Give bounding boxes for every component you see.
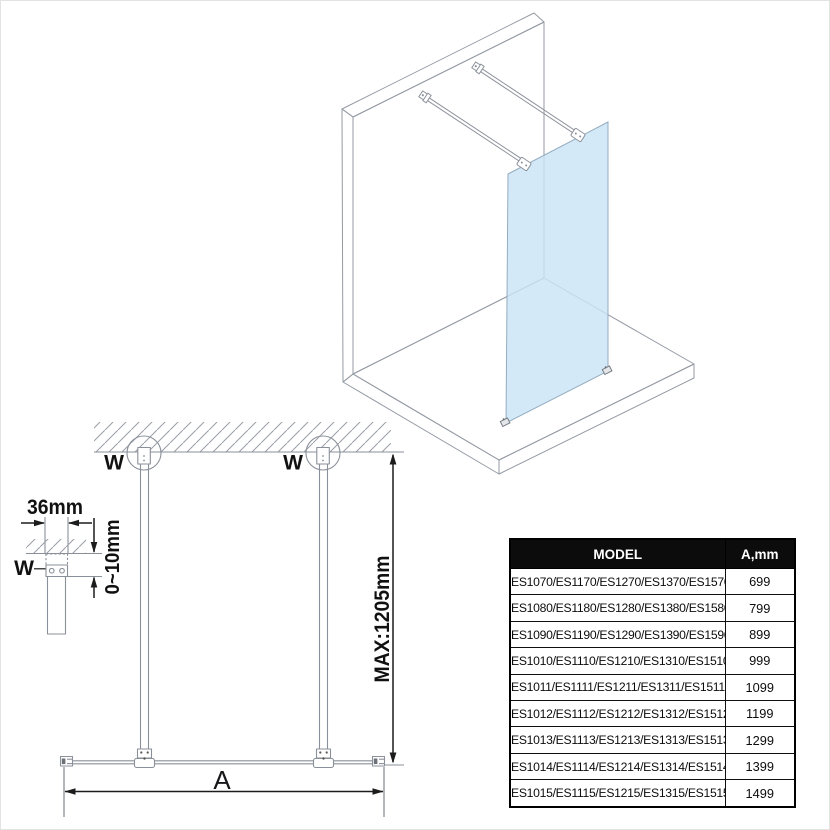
wall-marker-detail: W [14, 557, 34, 580]
table-row: ES1014/ES1114/ES1214/ES1314/ES1514 1399 [510, 753, 795, 779]
column-header-a-mm: A,mm [725, 539, 795, 569]
plan-view: MAX:1205mm A W W 36mm [14, 422, 404, 817]
support-rod-left [141, 464, 149, 749]
model-cell: ES1010/ES1110/ES1210/ES1310/ES1510 [510, 648, 725, 674]
support-rod-right [320, 464, 328, 749]
table-row: ES1070/ES1170/ES1270/ES1370/ES1570 699 [510, 569, 795, 595]
model-table: MODEL A,mm ES1070/ES1170/ES1270/ES1370/E… [509, 538, 796, 808]
table-row: ES1011/ES1111/ES1211/ES1311/ES1511 1099 [510, 674, 795, 700]
iso-support-bar-left [418, 90, 531, 171]
model-cell: ES1015/ES1115/ES1215/ES1315/ES1515 [510, 780, 725, 807]
max-length-label: MAX:1205mm [370, 556, 394, 683]
a-mm-cell: 1199 [725, 701, 795, 727]
model-cell: ES1080/ES1180/ES1280/ES1380/ES1580 [510, 595, 725, 621]
glass-width-label: A [213, 765, 231, 795]
table-row: ES1080/ES1180/ES1280/ES1380/ES1580 799 [510, 595, 795, 621]
table-row: ES1012/ES1112/ES1212/ES1312/ES1512 1199 [510, 701, 795, 727]
model-cell: ES1090/ES1190/ES1290/ES1390/ES1590 [510, 621, 725, 647]
a-mm-cell: 1499 [725, 780, 795, 807]
glass-clamp-left [135, 749, 155, 768]
model-cell: ES1014/ES1114/ES1214/ES1314/ES1514 [510, 753, 725, 779]
a-mm-cell: 999 [725, 648, 795, 674]
column-header-model: MODEL [510, 539, 725, 569]
a-mm-cell: 899 [725, 621, 795, 647]
dimension-glass-width: A [64, 765, 384, 817]
bracket-detail: 36mm 0~10mm W [14, 496, 124, 634]
glass-end-cap-right [373, 757, 385, 767]
model-cell: ES1070/ES1170/ES1270/ES1370/ES1570 [510, 569, 725, 595]
model-cell: ES1011/ES1111/ES1211/ES1311/ES1511 [510, 674, 725, 700]
glass-panel-plan [64, 761, 384, 764]
detail-wall-hatch [26, 539, 86, 554]
table-row: ES1013/ES1113/ES1213/ES1313/ES1513 1299 [510, 727, 795, 753]
model-cell: ES1012/ES1112/ES1212/ES1312/ES1512 [510, 701, 725, 727]
a-mm-cell: 1099 [725, 674, 795, 700]
model-cell: ES1013/ES1113/ES1213/ES1313/ES1513 [510, 727, 725, 753]
wall-marker-right: W [283, 452, 303, 475]
dimension-max-length: MAX:1205mm [370, 454, 404, 766]
glass-clamp-right [314, 749, 334, 768]
adjustment-label: 0~10mm [102, 520, 124, 595]
table-row: ES1015/ES1115/ES1215/ES1315/ES1515 1499 [510, 780, 795, 807]
shower-screen-spec-page: MAX:1205mm A W W 36mm [0, 0, 830, 830]
a-mm-cell: 699 [725, 569, 795, 595]
table-header-row: MODEL A,mm [510, 539, 795, 569]
wall-marker-left: W [104, 452, 124, 475]
glass-end-cap-left [61, 757, 73, 767]
isometric-view [342, 13, 694, 474]
a-mm-cell: 799 [725, 595, 795, 621]
iso-support-bar-right [471, 61, 585, 142]
bracket-width-label: 36mm [27, 496, 83, 519]
a-mm-cell: 1399 [725, 753, 795, 779]
table-row: ES1090/ES1190/ES1290/ES1390/ES1590 899 [510, 621, 795, 647]
a-mm-cell: 1299 [725, 727, 795, 753]
table-row: ES1010/ES1110/ES1210/ES1310/ES1510 999 [510, 648, 795, 674]
